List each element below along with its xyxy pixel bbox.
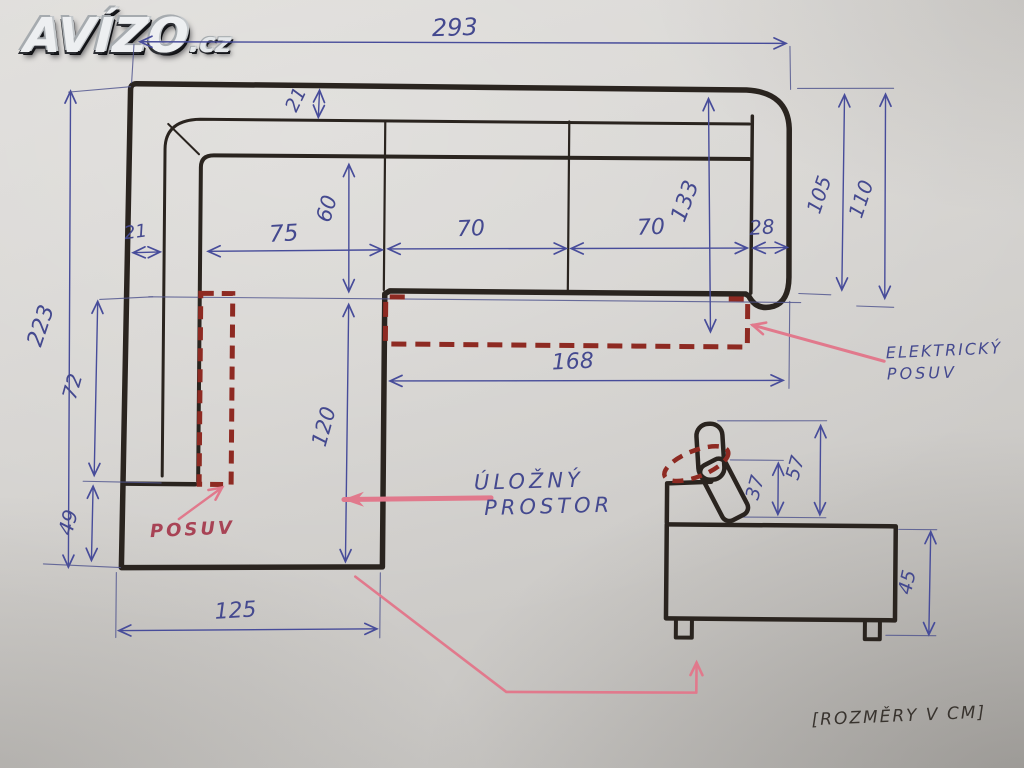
dim-line-60 <box>348 165 350 292</box>
dim-line-120 <box>345 305 348 562</box>
dim-line-57 <box>820 426 821 515</box>
dim-line-223 <box>66 91 72 567</box>
chaise-slide-dashed-box <box>199 293 233 484</box>
side-view-pointer-arrow <box>354 577 697 694</box>
dim-label-chaise-inner-length: 120 <box>307 404 341 449</box>
dim-label-chaise-width: 125 <box>214 597 257 625</box>
side-view-body <box>666 524 896 620</box>
side-view-leg-left <box>676 619 692 637</box>
front-edge-extension-line <box>149 297 801 303</box>
dim-label-total-depth: 223 <box>23 302 60 350</box>
right-armrest-inner-line <box>751 116 753 293</box>
ext-223-bottom <box>43 564 120 568</box>
ext-168-right <box>789 301 790 388</box>
photographed-sketch-page: AVÍZO.cz <box>0 0 1024 768</box>
dim-line-125 <box>119 627 377 633</box>
dim-line-45 <box>929 532 931 635</box>
ext-110-bottom <box>857 306 894 307</box>
dim-label-backrest-depth: 21 <box>281 84 311 115</box>
dim-line-110 <box>884 94 887 298</box>
dim-label-total-width: 293 <box>432 13 479 42</box>
dim-label-seat-left-width: 75 <box>268 220 299 248</box>
seat-seam-left <box>384 122 385 290</box>
dim-label-seat-body-height: 45 <box>894 568 921 596</box>
ext-223-top <box>69 86 131 93</box>
dim-label-headrest-total: 57 <box>782 453 810 482</box>
sofa-dimension-sketch: 293 21 60 120 75 70 70 28 21 133 105 110… <box>0 0 1024 768</box>
dimension-lines <box>66 37 935 638</box>
extension-lines <box>43 40 941 645</box>
dim-label-seat-depth: 60 <box>312 192 342 224</box>
dim-label-depth-to-storage: 133 <box>666 177 704 225</box>
dim-line-105 <box>842 95 845 290</box>
seat-seam-right <box>568 121 569 290</box>
ext-105-bottom <box>799 293 831 294</box>
dim-line-21-armrest <box>133 252 160 253</box>
corner-seam-diagonal <box>168 124 199 154</box>
storage-space-label-line1: ÚLOŽNÝ <box>474 467 585 495</box>
electric-slide-label-line2: POSUV <box>887 363 958 384</box>
units-note: [ROZMĚRY V CM] <box>811 701 986 731</box>
dim-label-chaise-side-lower: 49 <box>53 507 83 538</box>
posuv-arrow <box>179 487 222 519</box>
ext-125-right <box>380 573 381 638</box>
dim-line-75 <box>208 248 382 253</box>
dim-label-seat-right-width: 70 <box>636 215 665 241</box>
dim-line-21-back <box>318 90 319 117</box>
dim-line-72 <box>94 301 98 475</box>
dim-label-chaise-side-upper: 72 <box>57 371 87 402</box>
posuv-label: POSUV <box>150 517 236 542</box>
dim-label-seat-mid-width: 70 <box>456 216 485 242</box>
left-armrest-front-line <box>123 484 195 485</box>
dim-label-left-armrest-width: 21 <box>123 220 148 244</box>
dim-label-right-depth-inner: 105 <box>802 173 837 217</box>
storage-space-arrow <box>344 497 491 501</box>
dim-line-49 <box>91 486 93 560</box>
dim-label-right-armrest-width: 28 <box>748 214 775 240</box>
electric-storage-dashed-box <box>385 296 747 347</box>
dim-label-right-depth-outer: 110 <box>844 177 879 221</box>
electric-slide-arrow <box>752 325 884 361</box>
side-view-armrest <box>667 481 711 522</box>
dim-label-storage-length: 168 <box>551 349 594 376</box>
storage-markings <box>199 293 748 489</box>
back-cushion-front-line <box>198 154 749 486</box>
electric-slide-label-line1: ELEKTRICKÝ <box>885 338 1002 362</box>
dim-line-70-right <box>571 247 747 251</box>
dim-line-133 <box>706 99 712 332</box>
dim-line-28 <box>753 247 787 248</box>
ext-57-top <box>718 420 827 422</box>
ext-125-left <box>116 573 117 638</box>
ext-105-110-top <box>798 87 894 89</box>
dim-line-168 <box>390 377 783 384</box>
side-view-leg-right <box>865 621 880 639</box>
text-annotations: POSUV ÚLOŽNÝ PROSTOR ELEKTRICKÝ POSUV [R… <box>148 331 1003 732</box>
ext-37-57-bottom <box>743 517 826 518</box>
sofa-side-view <box>658 422 896 639</box>
ext-293-right <box>790 46 791 89</box>
storage-space-label-line2: PROSTOR <box>484 493 614 520</box>
ext-293-left <box>132 45 134 83</box>
dim-line-70-mid <box>388 247 566 251</box>
